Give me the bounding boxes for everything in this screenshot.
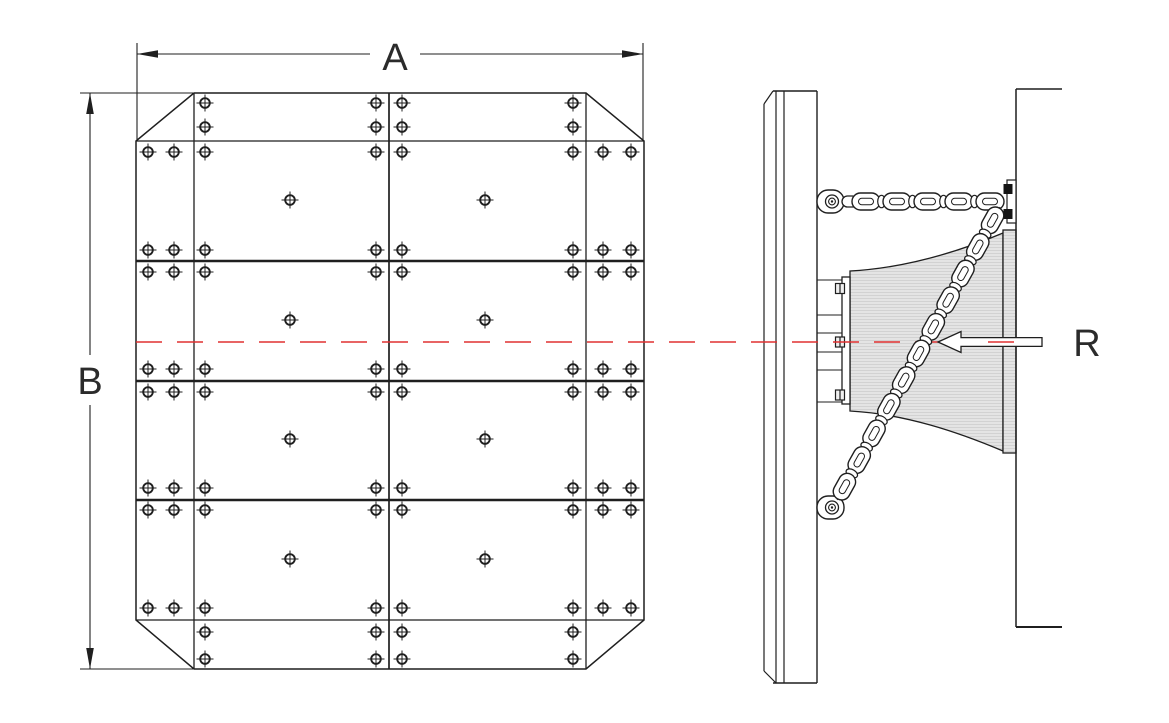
bolt-hole [140,384,157,401]
bolt-hole [166,480,183,497]
bolt-hole [595,144,612,161]
bolt-hole [595,480,612,497]
bolt-hole [394,480,411,497]
dim-a-label: A [382,37,408,79]
dim-b-label: B [77,361,102,403]
bolt-hole [623,361,640,378]
bolt-hole [368,600,385,617]
bolt-hole [368,502,385,519]
bolt-hole [166,600,183,617]
bolt-hole [166,384,183,401]
bolt-hole [565,624,582,641]
bolt-hole [166,242,183,259]
chain-bracket-top [817,190,844,213]
bolt-hole [282,312,299,329]
bolt-hole [477,312,494,329]
bolt-hole [197,361,214,378]
bolt-hole [623,242,640,259]
bolt-hole [197,600,214,617]
fender-drawing-canvas: A B [0,0,1169,723]
bolt-hole [394,600,411,617]
chain-link [852,193,880,210]
bolt-hole [623,502,640,519]
bolt-hole [394,119,411,136]
bolt-hole [477,431,494,448]
bolt-hole [595,264,612,281]
bolt-hole [565,242,582,259]
bolt-hole [565,600,582,617]
bolt-hole [140,264,157,281]
bolt-hole [197,119,214,136]
bolt-hole [394,95,411,112]
bolt-hole [595,384,612,401]
bolt-hole [394,502,411,519]
bolt-hole [197,242,214,259]
bolt-hole [623,480,640,497]
bolt-hole [166,144,183,161]
dim-a-arrowhead-right [622,50,643,58]
bolt-hole [368,144,385,161]
bolt-hole [368,361,385,378]
chain-link [883,193,911,210]
bolt-hole [477,192,494,209]
bolt-hole [197,264,214,281]
chain-link [914,193,942,210]
bolt-hole [197,480,214,497]
front-view-panel [136,93,644,669]
bolt-hole [394,384,411,401]
anchor-bolt-bottom [1004,209,1013,219]
dim-b-arrowhead-bottom [86,648,94,669]
bolt-hole [197,624,214,641]
bolt-hole [197,651,214,668]
bolt-hole [394,264,411,281]
bolt-hole [140,480,157,497]
bolt-hole [368,480,385,497]
bolt-hole [477,551,494,568]
bolt-hole [140,144,157,161]
reaction-label: R [1073,323,1100,365]
chain-link [945,193,973,210]
bolt-hole [565,651,582,668]
bolt-hole [394,651,411,668]
bolt-hole [565,361,582,378]
bolt-hole [166,361,183,378]
bolt-hole [140,361,157,378]
bolt-hole [394,144,411,161]
bolt-hole [565,119,582,136]
bolt-hole [282,192,299,209]
side-view-panel [764,91,817,683]
bolt-hole [140,600,157,617]
dim-a-arrowhead-left [137,50,158,58]
support-chain-horizontal [842,193,1004,210]
bolt-hole [368,624,385,641]
bolt-hole [623,600,640,617]
bolt-hole [595,502,612,519]
bolt-hole [565,95,582,112]
bolt-hole [623,144,640,161]
anchor-bolt-top [1004,184,1013,194]
bolt-hole [197,384,214,401]
bolt-hole [595,242,612,259]
bolt-hole [565,384,582,401]
bolt-hole [197,144,214,161]
side-panel-bevel-top [764,91,773,104]
bolt-hole [565,144,582,161]
bolt-hole [623,384,640,401]
bolt-hole [394,242,411,259]
bolt-hole [565,480,582,497]
wall-chain-anchor [1004,180,1017,223]
bolt-hole [623,264,640,281]
bolt-hole [595,600,612,617]
support-structure [1016,89,1062,627]
bolt-hole [282,431,299,448]
bolt-hole [368,264,385,281]
bolt-hole [197,95,214,112]
side-panel-bevel-bottom [764,671,776,683]
bolt-hole [282,551,299,568]
bolt-hole [166,502,183,519]
bolt-hole [368,95,385,112]
bolt-hole [394,361,411,378]
bolt-hole [595,361,612,378]
bolt-hole [166,264,183,281]
dim-b-arrowhead-top [86,93,94,114]
bolt-hole [394,624,411,641]
bolt-hole [368,119,385,136]
bolt-hole [197,502,214,519]
bolt-hole [368,384,385,401]
bolt-hole [368,242,385,259]
bolt-hole [565,502,582,519]
bolt-hole [565,264,582,281]
bolt-hole [368,651,385,668]
bolt-hole [140,502,157,519]
technical-drawing: A B [0,0,1169,723]
bolt-hole [140,242,157,259]
